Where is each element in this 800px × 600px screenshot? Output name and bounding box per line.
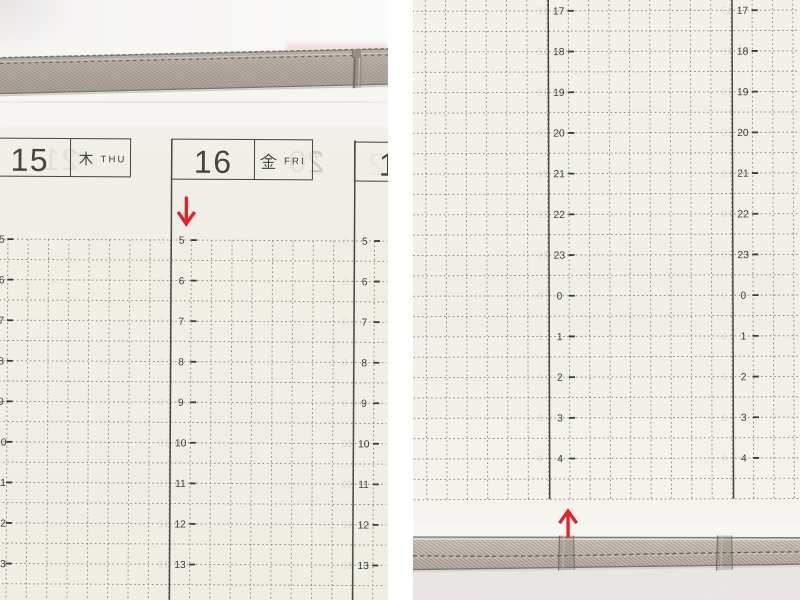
svg-text:17: 17	[720, 6, 732, 17]
svg-text:3: 3	[538, 413, 544, 424]
svg-text:7: 7	[362, 318, 368, 329]
svg-text:18: 18	[737, 47, 749, 58]
svg-text:18: 18	[553, 47, 565, 58]
svg-text:18: 18	[536, 47, 548, 58]
svg-text:23: 23	[721, 250, 733, 261]
svg-text:7: 7	[0, 316, 5, 327]
svg-text:20: 20	[553, 129, 565, 140]
svg-text:8: 8	[361, 358, 367, 369]
svg-text:8: 8	[341, 358, 347, 369]
svg-text:22: 22	[537, 210, 549, 221]
svg-text:1: 1	[537, 332, 543, 343]
svg-text:19: 19	[537, 88, 549, 99]
svg-text:11: 11	[158, 479, 169, 490]
svg-text:2: 2	[721, 372, 727, 383]
svg-text:21: 21	[553, 169, 565, 180]
svg-text:22: 22	[554, 210, 566, 221]
svg-text:0: 0	[537, 291, 543, 302]
svg-text:11: 11	[175, 479, 186, 490]
svg-text:1: 1	[721, 331, 727, 342]
svg-text:3: 3	[741, 413, 747, 424]
svg-text:23: 23	[554, 251, 566, 262]
svg-text:1: 1	[557, 332, 563, 343]
svg-text:20: 20	[537, 128, 549, 139]
svg-text:21: 21	[537, 169, 549, 180]
svg-text:8: 8	[0, 356, 4, 367]
svg-text:8: 8	[158, 357, 164, 368]
svg-text:3: 3	[557, 413, 563, 424]
svg-text:3: 3	[721, 413, 727, 424]
svg-text:13: 13	[340, 561, 352, 572]
svg-text:11: 11	[341, 480, 352, 491]
svg-text:13: 13	[157, 560, 169, 571]
svg-text:7: 7	[342, 317, 348, 328]
svg-text:10: 10	[175, 438, 187, 449]
svg-text:13: 13	[0, 559, 6, 570]
svg-text:11: 11	[0, 478, 6, 489]
svg-text:4: 4	[741, 454, 747, 465]
svg-text:19: 19	[737, 87, 749, 98]
svg-text:23: 23	[537, 251, 549, 262]
svg-text:4: 4	[538, 454, 544, 465]
svg-text:6: 6	[0, 275, 5, 286]
svg-text:10: 10	[358, 439, 370, 450]
svg-text:0: 0	[557, 291, 563, 302]
svg-text:23: 23	[737, 250, 749, 261]
svg-text:12: 12	[174, 520, 186, 531]
svg-text:5: 5	[342, 236, 348, 247]
svg-text:7: 7	[158, 316, 164, 327]
svg-text:12: 12	[358, 520, 370, 531]
svg-text:21: 21	[721, 169, 733, 180]
svg-text:18: 18	[720, 46, 732, 57]
svg-text:12: 12	[157, 519, 169, 530]
svg-text:9: 9	[158, 398, 164, 409]
svg-text:9: 9	[341, 398, 347, 409]
svg-text:5: 5	[0, 235, 5, 246]
svg-text:13: 13	[174, 560, 186, 571]
svg-text:1: 1	[741, 331, 747, 342]
svg-text:2: 2	[557, 373, 563, 384]
svg-text:9: 9	[361, 399, 367, 410]
svg-text:17: 17	[553, 6, 565, 17]
svg-text:6: 6	[362, 277, 368, 288]
svg-text:19: 19	[720, 87, 732, 98]
svg-text:6: 6	[179, 276, 185, 287]
svg-text:12: 12	[341, 520, 353, 531]
svg-text:9: 9	[178, 398, 184, 409]
svg-text:22: 22	[721, 209, 733, 220]
svg-text:17: 17	[536, 6, 548, 17]
svg-text:5: 5	[159, 235, 165, 246]
svg-text:0: 0	[721, 291, 727, 302]
svg-text:5: 5	[179, 236, 185, 247]
svg-text:6: 6	[342, 277, 348, 288]
svg-text:22: 22	[737, 209, 749, 220]
svg-text:6: 6	[159, 276, 165, 287]
svg-text:2: 2	[537, 373, 543, 384]
svg-text:5: 5	[362, 237, 368, 248]
svg-text:21: 21	[737, 169, 749, 180]
svg-text:10: 10	[0, 437, 7, 448]
svg-text:4: 4	[722, 453, 728, 464]
svg-text:17: 17	[737, 6, 749, 17]
svg-text:11: 11	[358, 480, 369, 491]
svg-text:0: 0	[740, 291, 746, 302]
svg-text:4: 4	[557, 454, 563, 465]
svg-text:10: 10	[341, 439, 353, 450]
svg-text:20: 20	[720, 128, 732, 139]
svg-text:20: 20	[737, 128, 749, 139]
svg-text:7: 7	[178, 317, 184, 328]
svg-text:12: 12	[0, 519, 6, 530]
svg-text:19: 19	[553, 88, 565, 99]
svg-text:8: 8	[178, 357, 184, 368]
svg-text:9: 9	[0, 397, 4, 408]
svg-text:10: 10	[158, 438, 170, 449]
svg-text:2: 2	[741, 372, 747, 383]
svg-text:13: 13	[357, 561, 369, 572]
